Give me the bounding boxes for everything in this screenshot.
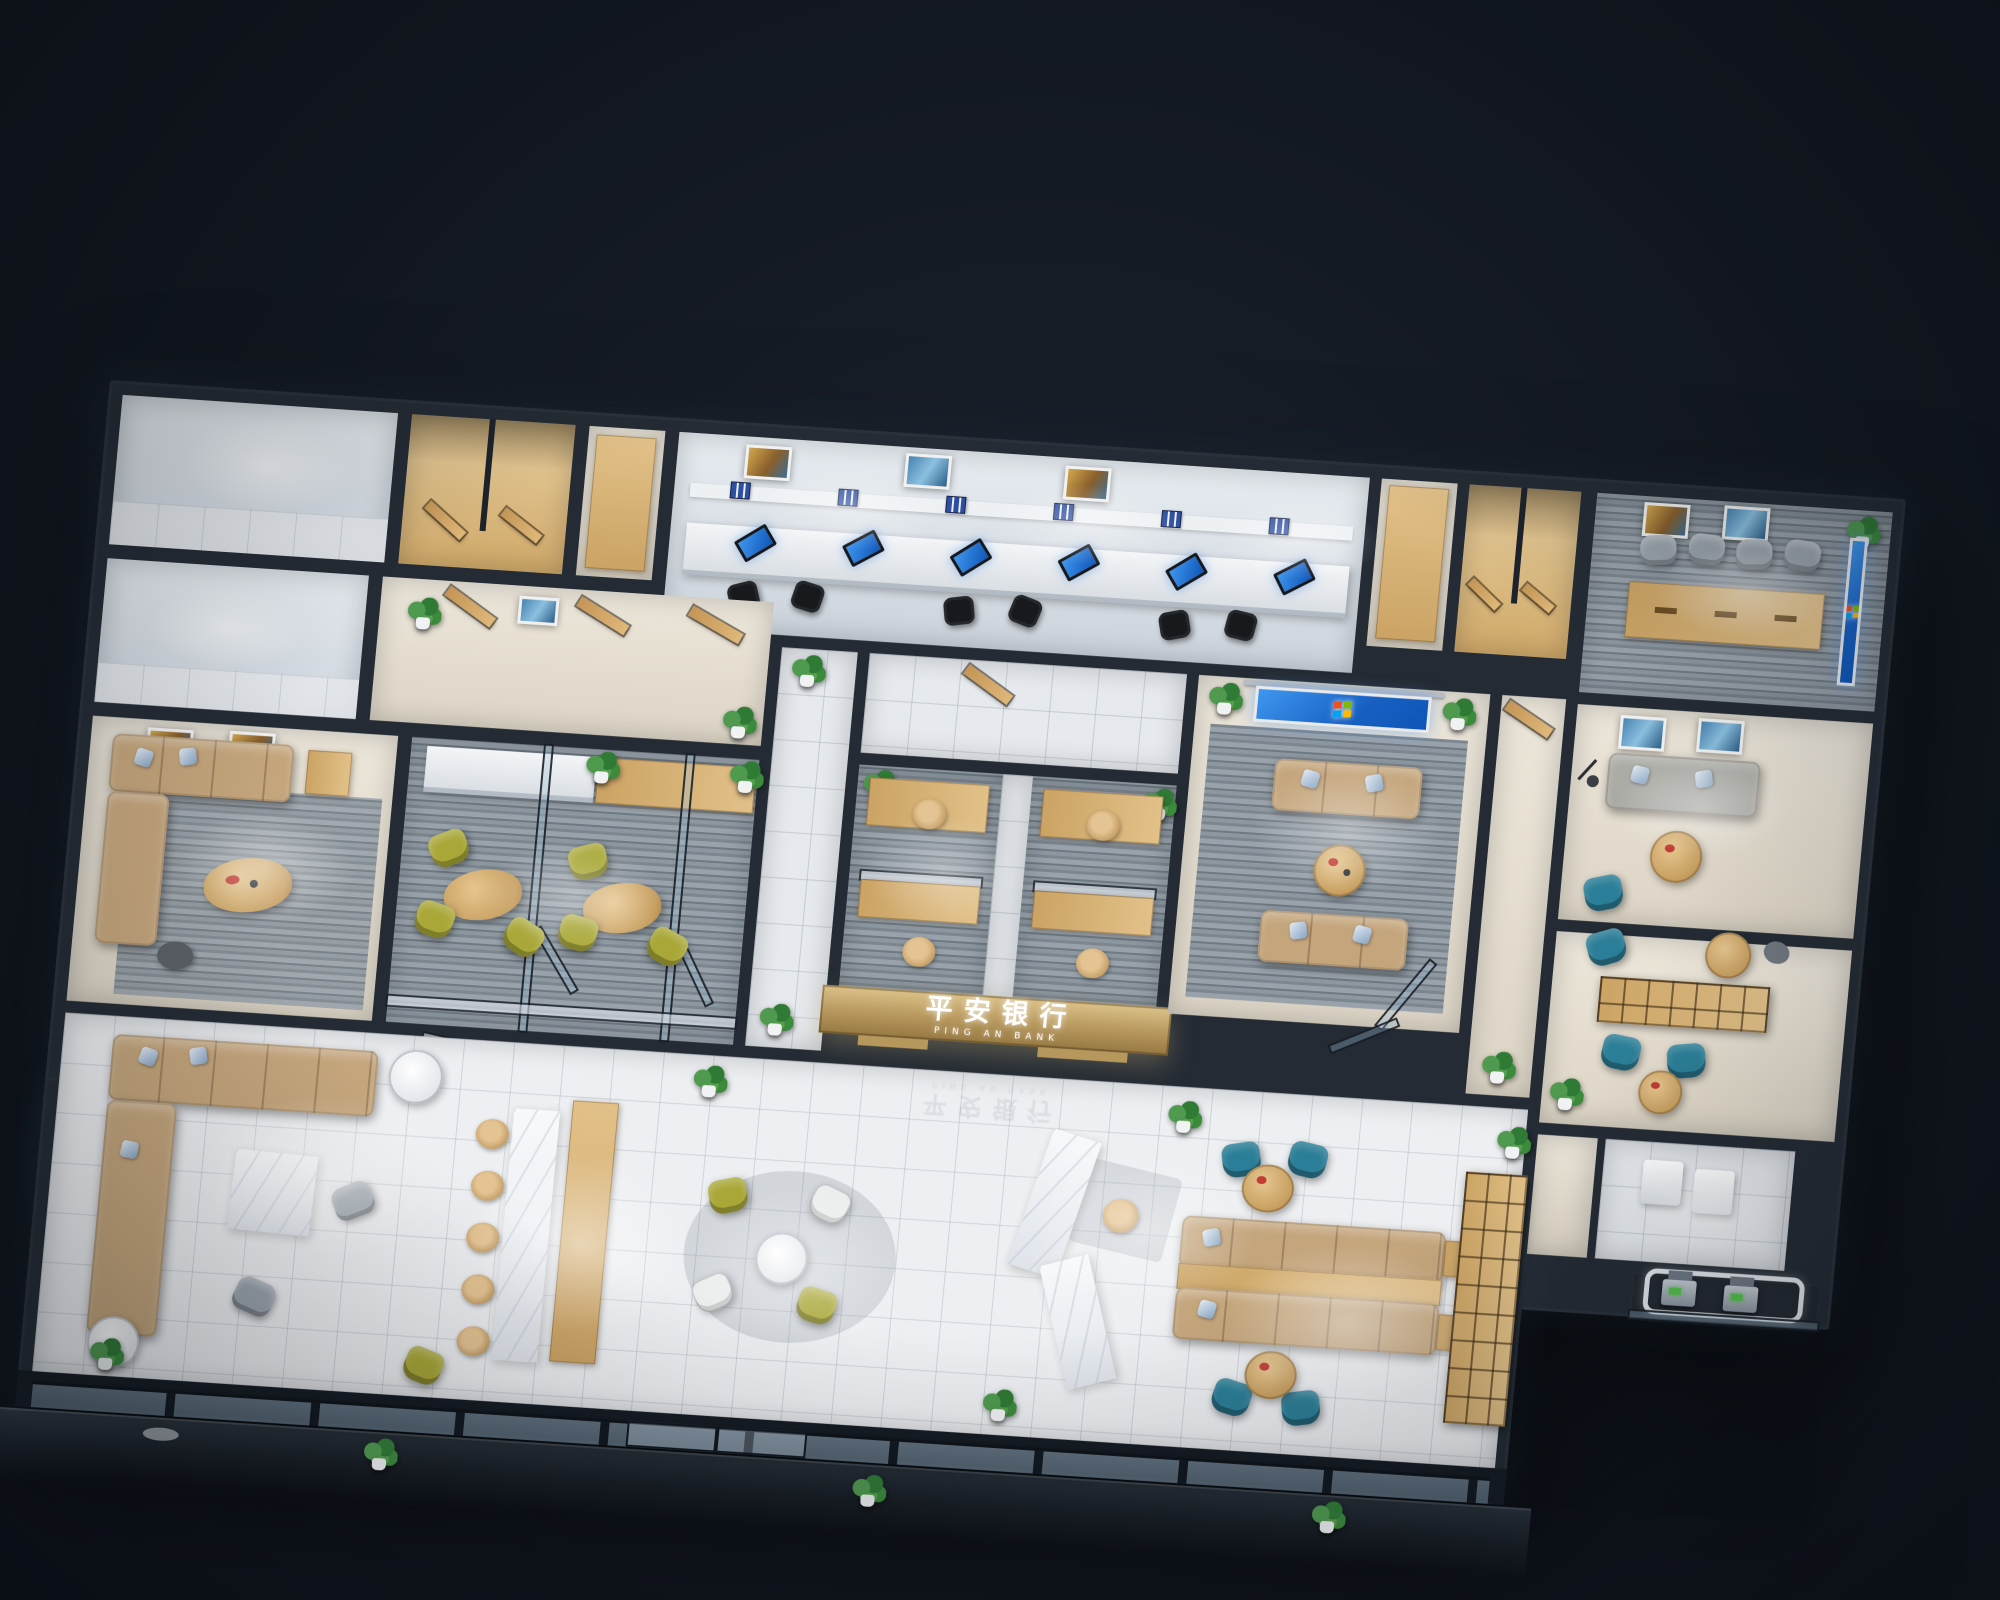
magazine [1256,1176,1267,1185]
magazine [1259,1362,1270,1371]
windows-logo-blue-pane [1846,613,1851,618]
corridor-plant-1 [788,654,827,688]
conference-table-cable-slot-1 [1655,607,1678,614]
conference-chair-2 [1686,532,1726,567]
bank-branch-building: 平安银行 PING AN BANK [15,380,1906,1525]
atm-machine-2 [1722,1285,1758,1313]
vip-sofa-1 [1271,758,1423,820]
teller-binder-set-4 [1053,503,1075,521]
teller-binder-set-6 [1268,517,1290,535]
magazine [1328,858,1339,867]
windows-logo-yellow-pane [1343,710,1352,717]
room-cabinet [1366,479,1457,651]
restroom-1-stall-door-2 [500,507,542,543]
magazine [225,875,239,885]
bench-pillow-1 [1202,1228,1221,1248]
teller-binder-set-5 [1161,510,1183,528]
room-utility-2 [94,558,369,719]
lobby-plant-3 [979,1388,1018,1422]
restroom-1-stall-door-1 [424,501,466,540]
conference-chair-1 [1640,534,1676,565]
facade-corner-post-left [15,1370,34,1407]
hallway-painting [517,596,559,627]
windows-logo-green-pane [1344,701,1353,708]
lounge-right-painting-2 [1696,718,1745,755]
meeting-plant-1 [583,750,622,784]
teacup [250,880,258,889]
booth-2-desk [1031,890,1154,936]
atm-machine-1 [1661,1279,1697,1307]
booth-1-desk [857,879,980,925]
teacup [1343,869,1351,876]
teller-binder-set-3 [945,496,967,514]
magazine [1651,1082,1661,1090]
restroom-2-stall-door-1 [1468,578,1501,611]
hallway-plant-2 [719,705,758,739]
teller-painting-1 [743,444,792,481]
windows-logo-blue-pane [1333,710,1342,717]
consult-vestibule [861,653,1188,774]
teller-chair-3 [943,595,975,626]
self-service-machine-1 [1640,1159,1684,1205]
self-service-machine-2 [1691,1169,1735,1215]
vip-plant-1 [1206,681,1245,715]
windows-logo-green-pane [1854,606,1859,611]
windows-logo-yellow-pane [1853,613,1858,618]
apron-plant-3 [1308,1500,1347,1534]
vip-plant-2 [1439,697,1478,731]
magazine [1664,844,1675,853]
lounge-right-painting-1 [1618,715,1667,752]
cabinet-wardrobe [1375,485,1449,642]
lobby-plant-4 [87,1337,126,1371]
conference-painting-1 [1642,502,1691,539]
bank-branch-3d-floorplan-scene: 平安银行 PING AN BANK [0,0,2000,1600]
windows-logo-red-pane [1846,606,1851,611]
lounge-right-sofa [1604,752,1761,818]
lounge-left-side-table [305,750,353,797]
lobby-plant-1 [690,1064,729,1098]
conference-table-cable-slot-3 [1774,615,1797,622]
lounge-left-pillow-2 [179,747,197,766]
lobby-plant-5 [1494,1126,1533,1160]
room-restroom-2 [1454,484,1581,659]
apron-plant-1 [360,1437,399,1471]
teller-chair-5 [1158,609,1192,642]
lobby-plant-2 [1165,1100,1204,1134]
teller-painting-3 [1063,466,1112,503]
vip-pillow-2 [1365,773,1384,793]
reading-plant [1546,1077,1585,1111]
room-utility-1 [109,395,398,563]
meeting-plant-2 [726,760,765,794]
hallway-plant-1 [404,596,443,630]
corridor-plant-2 [756,1002,795,1036]
restroom-2-stall-door-2 [1521,583,1554,613]
lounge-right-pillow-2 [1694,769,1713,788]
windows-logo-red-pane [1333,701,1342,708]
vip-pillow-3 [1289,921,1307,940]
conference-chair-3 [1736,539,1773,569]
facade-corner-post-right [1488,1468,1507,1505]
teller-binder-set-2 [837,489,859,507]
room-self-service [1595,1139,1796,1271]
conference-table-cable-slot-2 [1714,611,1737,618]
teller-painting-2 [903,453,952,490]
closet-wardrobe [585,434,657,571]
vip-sofa-2 [1257,909,1409,971]
room-reading-nook [1539,931,1852,1142]
apron-plant-2 [849,1474,888,1508]
conference-painting-2 [1722,505,1771,542]
right-side-strip [1527,1134,1598,1258]
teller-binder-set-1 [730,481,752,499]
lobby-pillow-2 [189,1046,208,1065]
room-restroom-1 [398,414,575,574]
entrance-center-mullion [713,1426,719,1452]
lobby-coffee-table [227,1149,319,1237]
corridor-right-plant [1478,1050,1517,1084]
room-closet [576,426,666,580]
